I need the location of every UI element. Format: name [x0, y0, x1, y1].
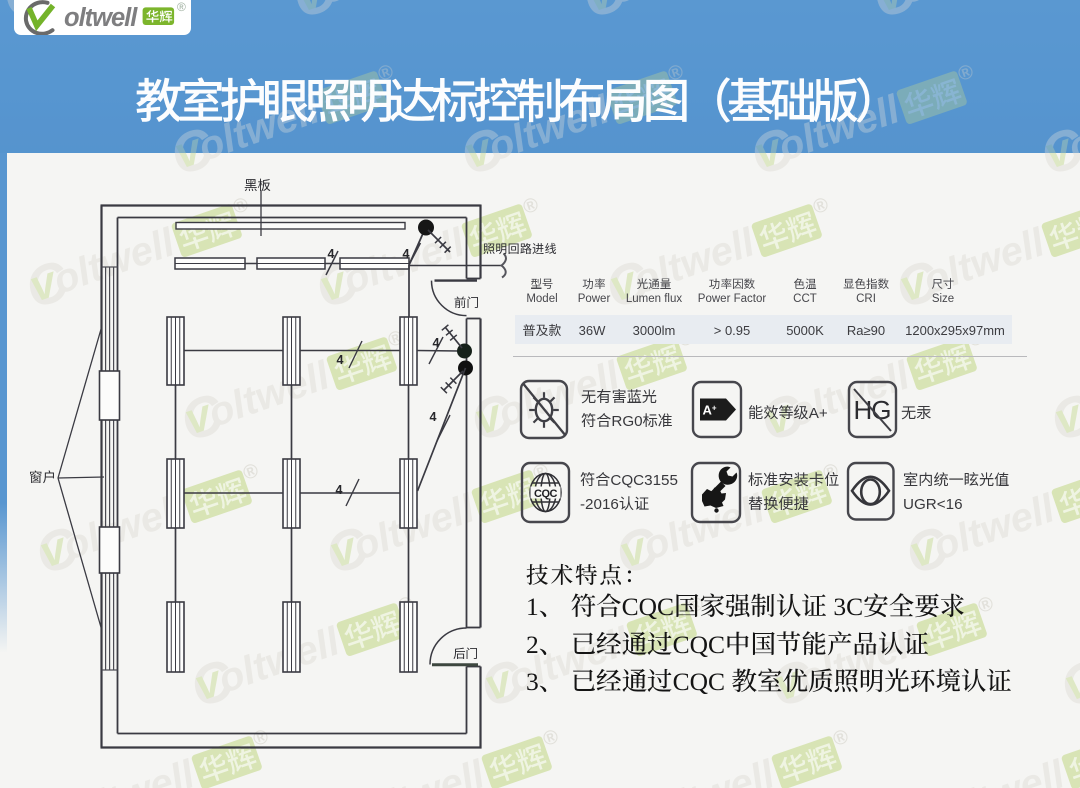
- svg-text:4: 4: [336, 483, 343, 497]
- svg-text:®: ®: [177, 0, 186, 14]
- svg-text:4: 4: [337, 353, 344, 367]
- svg-text:4: 4: [433, 336, 440, 350]
- svg-text:4: 4: [328, 247, 335, 261]
- svg-text:华辉: 华辉: [146, 5, 173, 25]
- svg-text:oltwell: oltwell: [64, 4, 138, 32]
- svg-text:CQC: CQC: [534, 488, 558, 500]
- svg-text:4: 4: [430, 410, 437, 424]
- svg-text:4: 4: [403, 247, 410, 261]
